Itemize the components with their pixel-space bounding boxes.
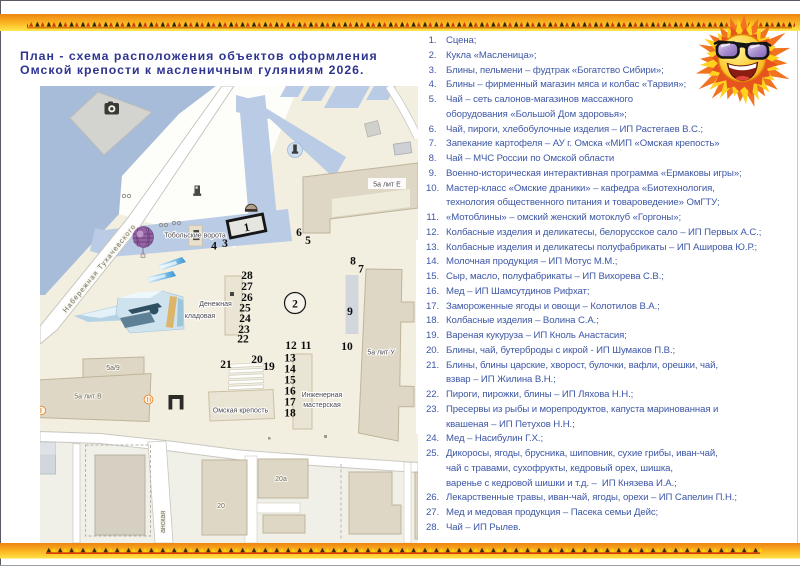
svg-text:12: 12 <box>285 340 297 352</box>
svg-text:Омская крепость: Омская крепость <box>213 408 269 415</box>
svg-text:5а лит У: 5а лит У <box>367 350 395 357</box>
svg-text:24: 24 <box>239 313 251 325</box>
svg-text:мастерская: мастерская <box>303 402 341 409</box>
svg-text:28: 28 <box>241 270 253 282</box>
svg-text:7: 7 <box>358 264 364 276</box>
svg-text:Денежная: Денежная <box>199 301 232 308</box>
svg-text:Тобольские ворота: Тобольские ворота <box>164 232 226 240</box>
svg-text:25: 25 <box>239 303 251 315</box>
svg-text:26: 26 <box>241 292 253 304</box>
svg-text:18: 18 <box>284 408 296 420</box>
svg-text:11: 11 <box>301 340 312 352</box>
svg-text:2: 2 <box>292 299 298 311</box>
svg-text:20а: 20а <box>275 476 287 483</box>
svg-text:5: 5 <box>305 235 311 247</box>
svg-text:5а/9: 5а/9 <box>106 365 120 372</box>
svg-text:5а лит Е: 5а лит Е <box>373 182 401 189</box>
svg-text:10: 10 <box>341 341 353 353</box>
svg-text:4: 4 <box>211 241 217 253</box>
svg-text:9: 9 <box>347 306 353 318</box>
svg-text:20: 20 <box>251 354 263 366</box>
svg-text:27: 27 <box>241 281 253 293</box>
svg-text:3: 3 <box>222 238 228 250</box>
svg-text:кладовая: кладовая <box>185 313 216 320</box>
svg-text:Инженерная: Инженерная <box>302 392 343 399</box>
svg-text:5а лит В: 5а лит В <box>74 394 102 401</box>
svg-text:23: 23 <box>238 324 250 336</box>
svg-text:20: 20 <box>217 503 225 510</box>
svg-text:анская: анская <box>160 511 167 533</box>
svg-text:8: 8 <box>350 256 356 268</box>
svg-text:6: 6 <box>296 227 302 239</box>
svg-text:19: 19 <box>263 361 275 373</box>
svg-text:21: 21 <box>220 359 232 371</box>
